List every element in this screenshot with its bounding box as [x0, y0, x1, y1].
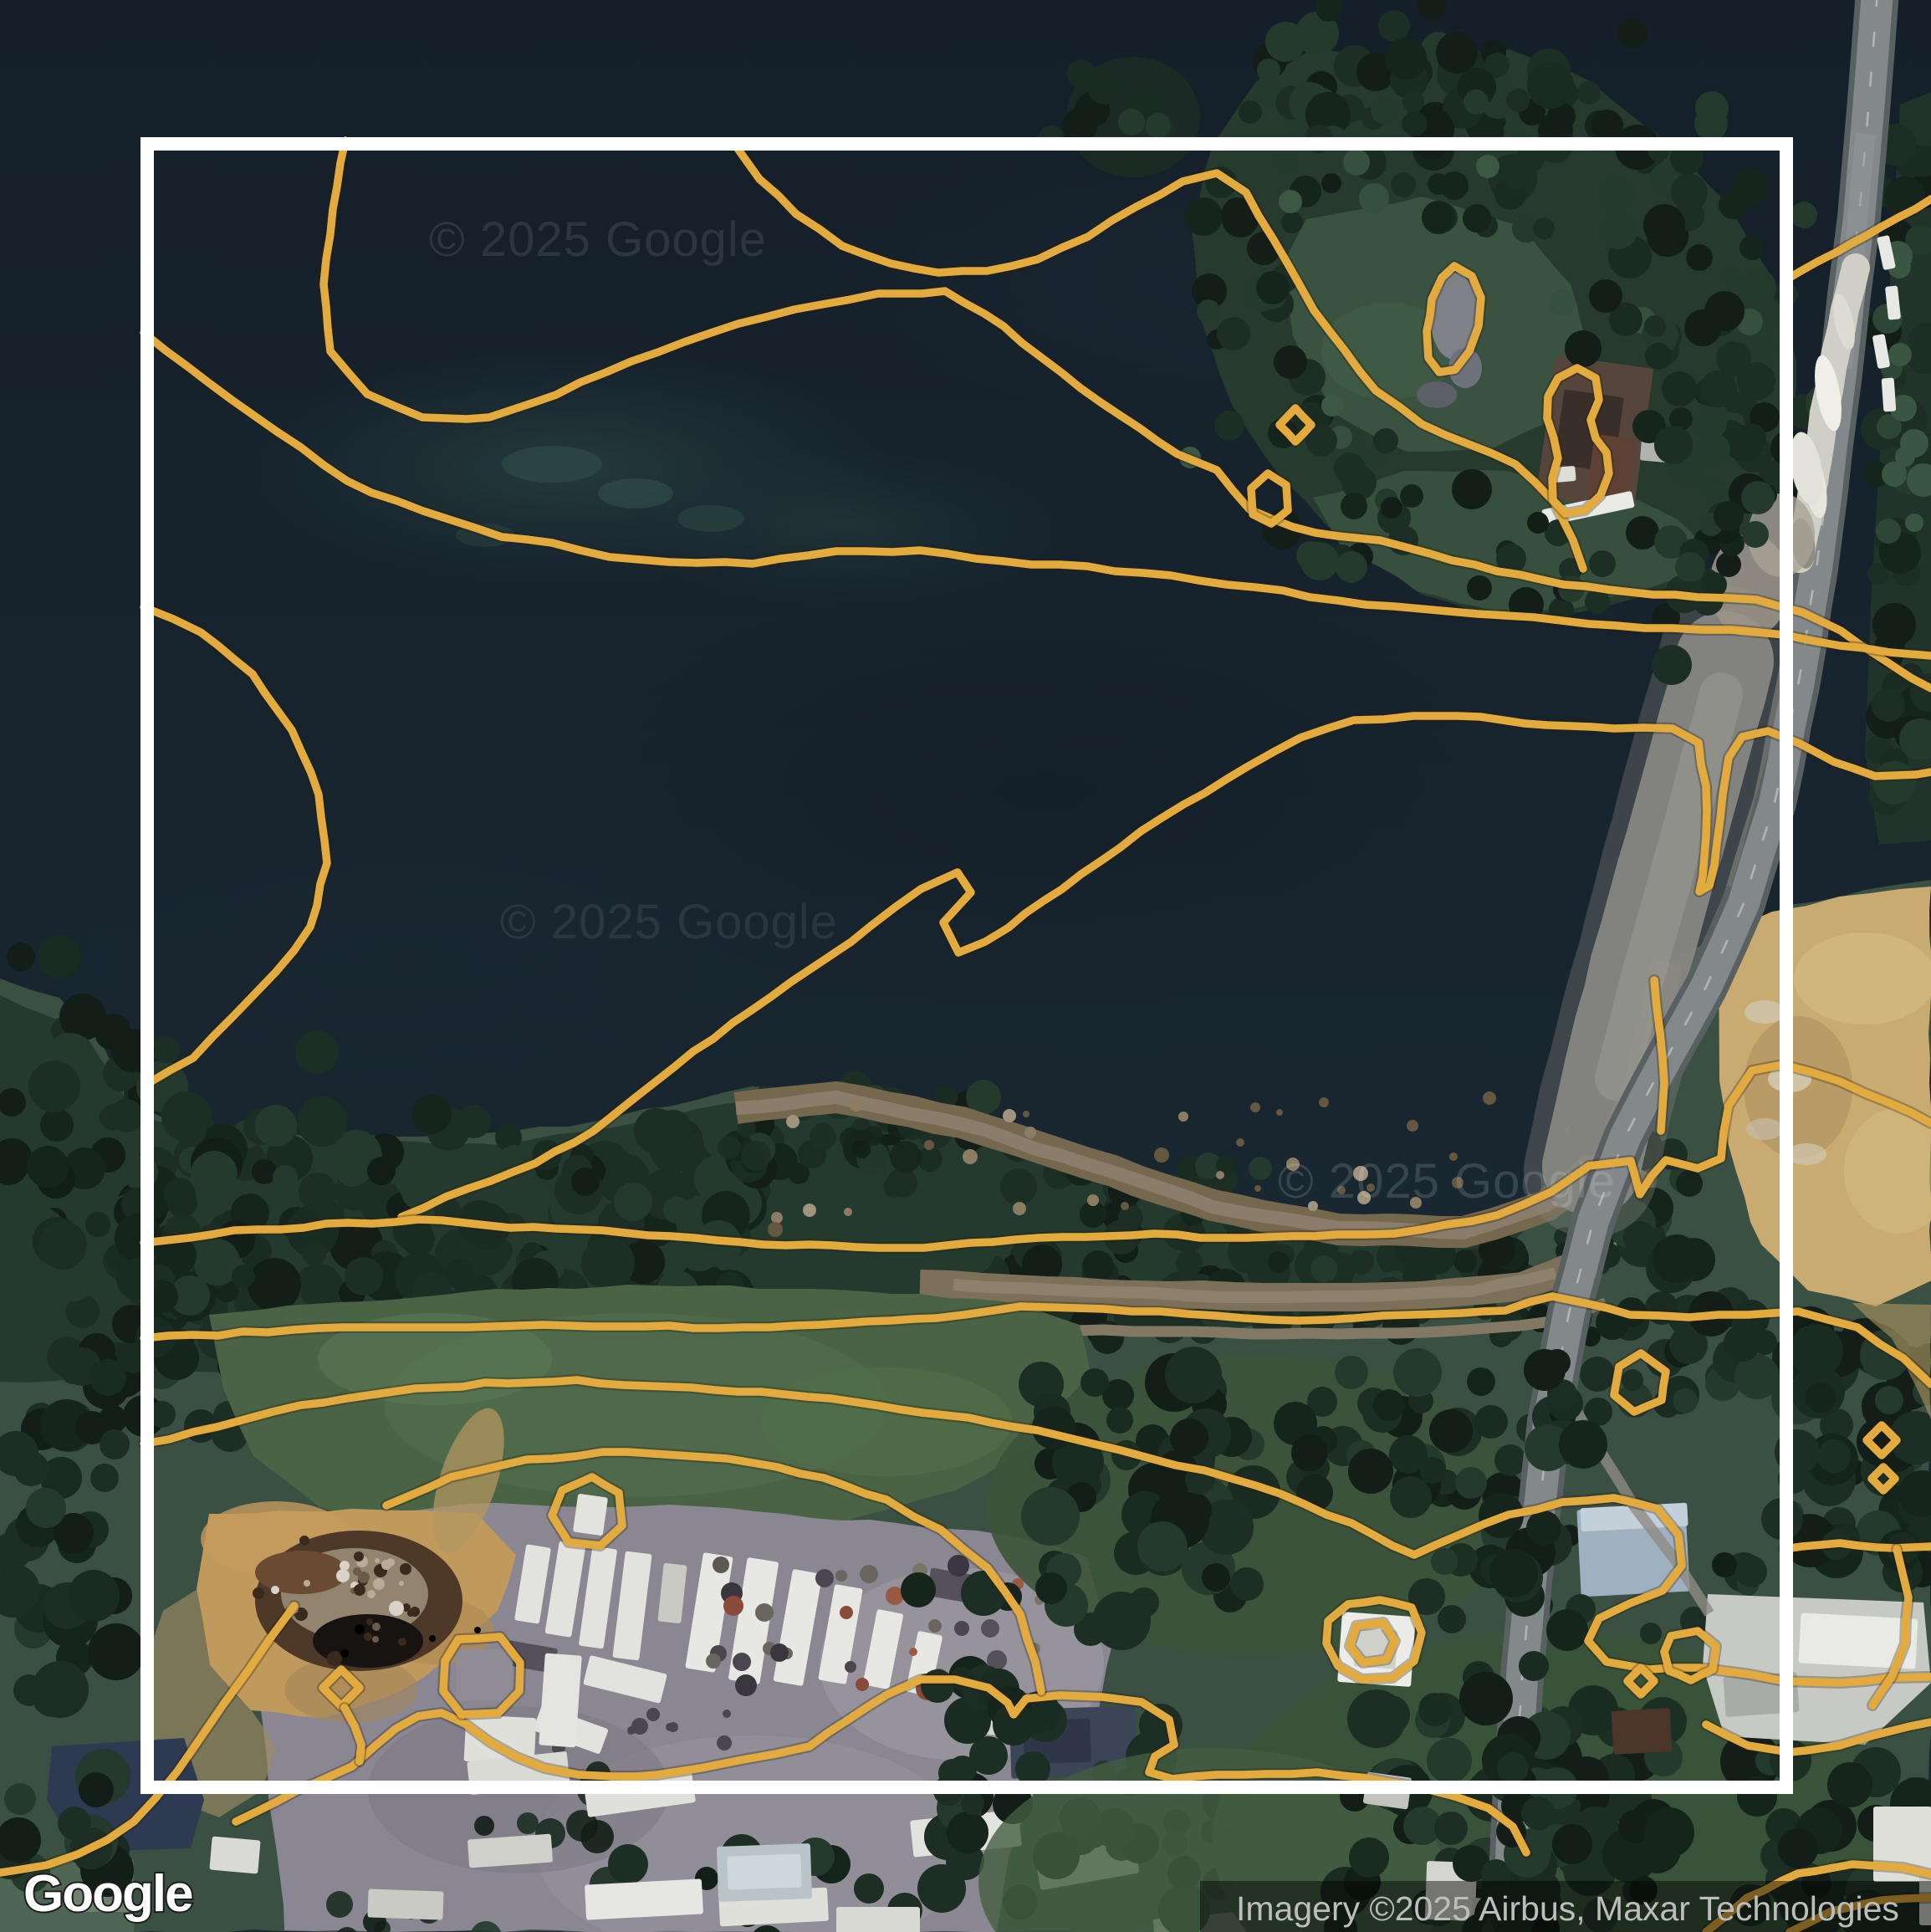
- svg-text:© 2025 Google: © 2025 Google: [429, 212, 767, 267]
- svg-text:© 2025 Google: © 2025 Google: [500, 895, 838, 949]
- svg-text:Google: Google: [23, 1865, 192, 1923]
- svg-text:Imagery ©2025 Airbus, Maxar Te: Imagery ©2025 Airbus, Maxar Technologies: [1236, 1889, 1899, 1928]
